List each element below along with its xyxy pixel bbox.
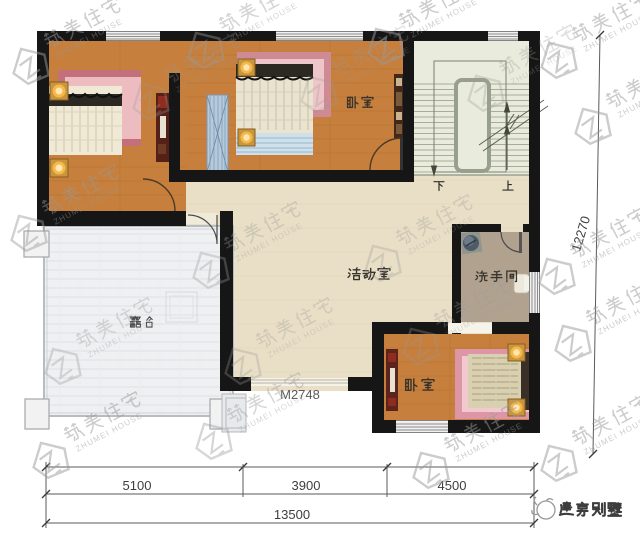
svg-text:ZHUMEI HOUSE: ZHUMEI HOUSE (582, 414, 640, 457)
svg-text:ZHUMEI HOUSE: ZHUMEI HOUSE (580, 227, 640, 270)
svg-text:5100: 5100 (123, 478, 152, 493)
svg-text:ZHUMEI HOUSE: ZHUMEI HOUSE (616, 77, 640, 120)
svg-text:13500: 13500 (274, 507, 310, 522)
svg-text:3900: 3900 (292, 478, 321, 493)
svg-text:ZHUMEI HOUSE: ZHUMEI HOUSE (582, 11, 640, 54)
svg-text:4500: 4500 (438, 478, 467, 493)
